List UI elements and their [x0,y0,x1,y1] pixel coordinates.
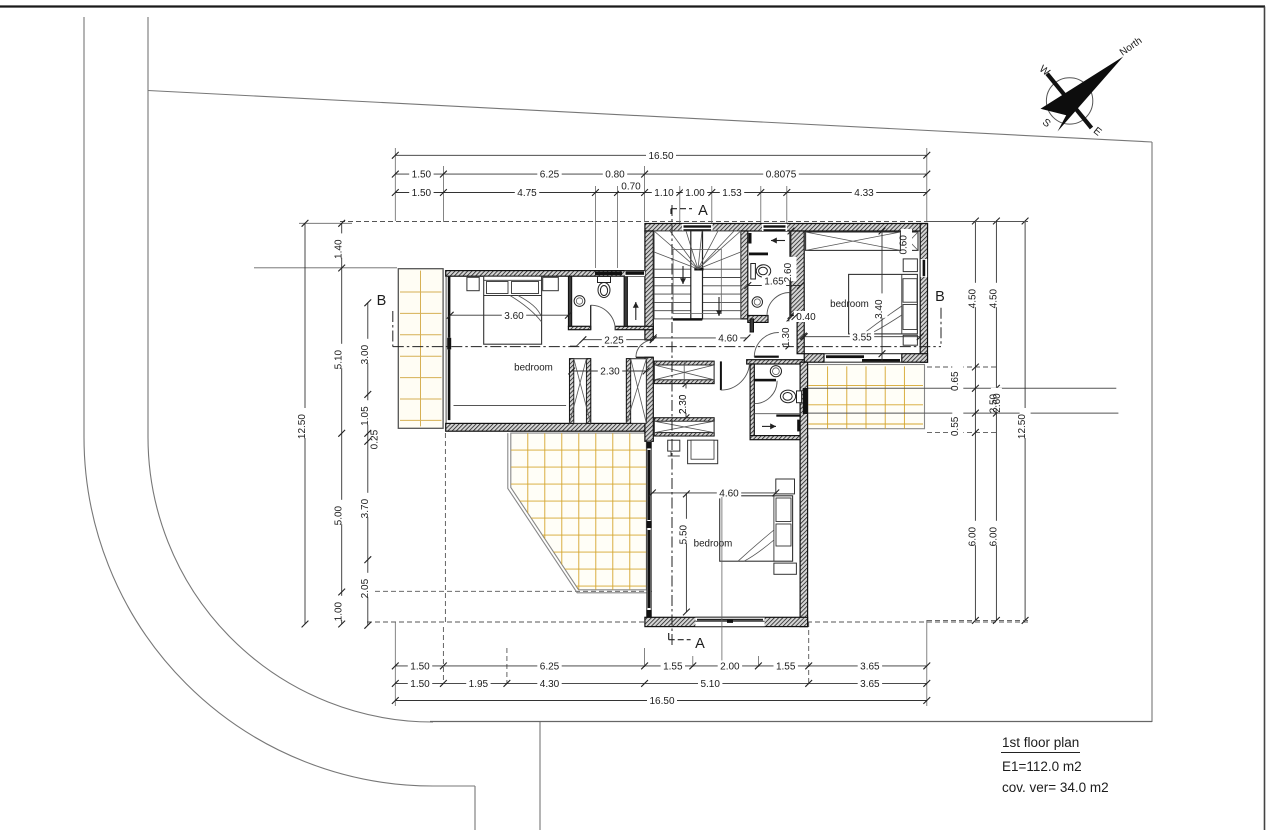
svg-text:3.00: 3.00 [360,344,371,364]
svg-text:bedroom: bedroom [694,539,733,550]
svg-text:4.33: 4.33 [854,188,874,199]
svg-text:B: B [935,289,945,305]
svg-text:3.55: 3.55 [852,332,872,343]
svg-text:1.50: 1.50 [412,170,432,181]
svg-text:bedroom: bedroom [514,363,553,374]
svg-text:5.10: 5.10 [334,349,345,369]
svg-text:3.70: 3.70 [360,498,371,518]
svg-text:0.25: 0.25 [370,429,381,449]
svg-text:1.55: 1.55 [776,662,796,673]
svg-text:1.53: 1.53 [722,188,742,199]
svg-text:1st floor plan: 1st floor plan [1002,735,1079,750]
svg-text:E1=112.0 m2: E1=112.0 m2 [1002,759,1082,774]
svg-text:0.65: 0.65 [950,371,961,391]
svg-text:12.50: 12.50 [297,414,308,439]
svg-text:B: B [377,293,387,309]
svg-text:3.40: 3.40 [874,299,885,319]
svg-text:6.25: 6.25 [540,170,560,181]
svg-text:4.60: 4.60 [718,334,738,345]
svg-text:2.00: 2.00 [720,662,740,673]
svg-text:1.30: 1.30 [781,327,792,347]
svg-text:2.60: 2.60 [992,393,1003,413]
svg-text:3.65: 3.65 [860,679,880,690]
svg-text:1.50: 1.50 [410,679,430,690]
svg-text:6.00: 6.00 [988,526,999,546]
svg-text:2.05: 2.05 [360,578,371,598]
svg-text:3.65: 3.65 [860,662,880,673]
svg-text:0.60: 0.60 [899,235,910,255]
svg-text:1.55: 1.55 [663,662,683,673]
svg-text:2.25: 2.25 [604,335,624,346]
svg-text:1.10: 1.10 [654,188,674,199]
svg-text:2.60: 2.60 [783,262,794,282]
svg-text:16.50: 16.50 [648,151,673,162]
svg-text:6.25: 6.25 [540,662,560,673]
svg-text:A: A [698,203,708,219]
svg-text:0.70: 0.70 [621,182,641,193]
svg-text:bedroom: bedroom [830,299,869,310]
svg-text:1.50: 1.50 [410,662,430,673]
svg-text:4.50: 4.50 [988,288,999,308]
svg-text:5.10: 5.10 [700,679,720,690]
svg-text:4.50: 4.50 [967,288,978,308]
svg-text:0.40: 0.40 [796,312,816,323]
svg-text:2.30: 2.30 [600,367,620,378]
svg-text:1.05: 1.05 [360,406,371,426]
svg-text:1.95: 1.95 [469,679,489,690]
svg-text:1.00: 1.00 [685,188,705,199]
svg-text:1.00: 1.00 [334,601,345,621]
svg-text:12.50: 12.50 [1017,414,1028,439]
svg-text:16.50: 16.50 [649,696,674,707]
svg-text:0.80: 0.80 [605,170,625,181]
svg-text:5.00: 5.00 [334,505,345,525]
svg-text:0.55: 0.55 [950,416,961,436]
svg-text:4.30: 4.30 [540,679,560,690]
svg-text:4.75: 4.75 [517,188,537,199]
svg-text:5.50: 5.50 [678,524,689,544]
svg-text:1.65: 1.65 [764,277,784,288]
svg-text:cov. ver= 34.0 m2: cov. ver= 34.0 m2 [1002,780,1109,795]
svg-text:2.30: 2.30 [678,394,689,414]
svg-text:A: A [695,636,705,652]
svg-text:1.50: 1.50 [412,188,432,199]
svg-text:3.60: 3.60 [504,311,524,322]
svg-text:0.8075: 0.8075 [766,170,797,181]
svg-text:6.00: 6.00 [967,526,978,546]
svg-text:1.40: 1.40 [334,239,345,259]
